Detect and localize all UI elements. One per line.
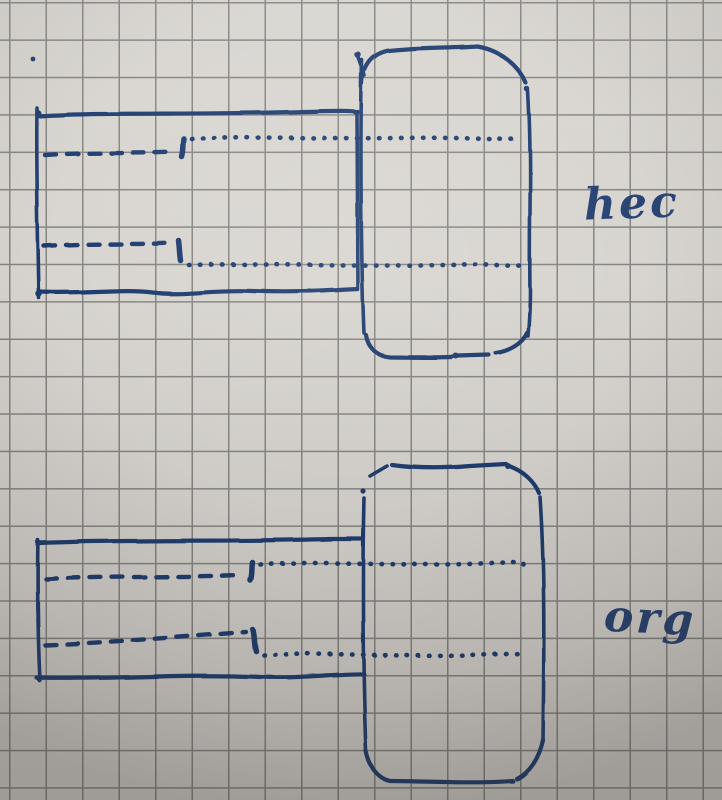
stray-ink-dot xyxy=(31,57,36,62)
ink-blob xyxy=(453,353,459,359)
bottom-bolt-upper-centerline-step xyxy=(250,562,252,580)
bottom-bolt-head-bottom-edge xyxy=(390,781,513,782)
handwritten-label-org: org xyxy=(603,595,697,644)
bottom-bolt-lower-centerline-step xyxy=(253,630,256,651)
graph-paper-background: hec org xyxy=(0,0,722,800)
ink-blob xyxy=(37,676,43,682)
ink-blob xyxy=(35,539,40,544)
ink-blob xyxy=(35,110,41,116)
ink-blob xyxy=(355,52,361,58)
ink-blob xyxy=(36,291,42,297)
ink-blob xyxy=(360,488,365,493)
ink-blob xyxy=(524,86,530,92)
top-bolt-head-right-edge xyxy=(528,91,530,336)
top-bolt-upper-centerline-step xyxy=(182,139,184,157)
handwritten-label-hec: hec xyxy=(583,180,680,227)
top-bolt-lower-centerline-step xyxy=(179,241,181,261)
bolt-sketch-canvas xyxy=(0,0,722,800)
